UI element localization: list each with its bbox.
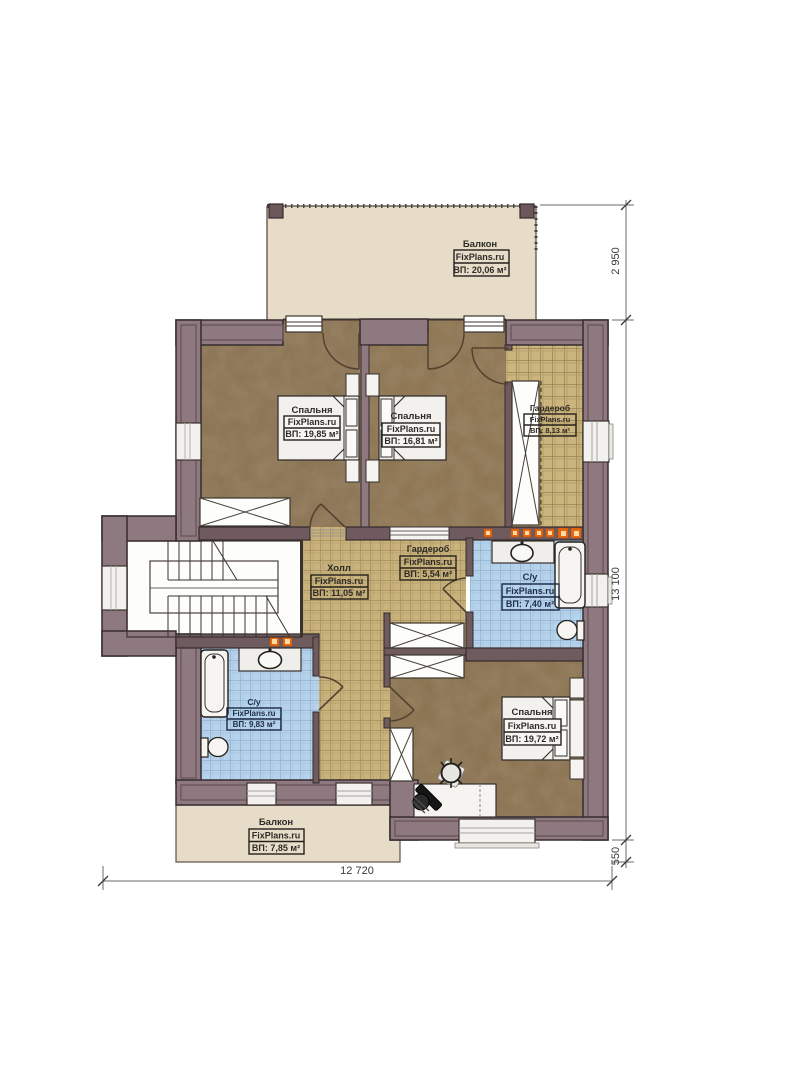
svg-text:С/у: С/у [523, 572, 539, 583]
svg-text:13 100: 13 100 [610, 567, 622, 601]
svg-text:Холл: Холл [327, 563, 351, 574]
svg-text:2 950: 2 950 [610, 247, 622, 275]
svg-text:ВП: 19,72 м²: ВП: 19,72 м² [505, 734, 558, 744]
svg-text:ВП: 16,81 м²: ВП: 16,81 м² [384, 436, 437, 446]
svg-text:С/у: С/у [247, 697, 261, 707]
svg-text:Балкон: Балкон [463, 239, 498, 250]
svg-text:ВП: 7,40 м²: ВП: 7,40 м² [506, 599, 554, 609]
svg-text:Спальня: Спальня [390, 411, 431, 422]
svg-text:Гардероб: Гардероб [407, 544, 450, 554]
svg-text:550: 550 [610, 847, 622, 865]
svg-text:ВП: 11,05 м²: ВП: 11,05 м² [313, 588, 366, 598]
svg-text:Балкон: Балкон [259, 817, 294, 828]
svg-text:ВП: 20,06 м²: ВП: 20,06 м² [453, 265, 506, 275]
svg-text:FixPlans.ru: FixPlans.ru [252, 831, 301, 841]
svg-text:FixPlans.ru: FixPlans.ru [508, 721, 557, 731]
svg-text:Спальня: Спальня [291, 405, 332, 416]
svg-text:FixPlans.ru: FixPlans.ru [404, 557, 453, 567]
svg-text:ВП: 5,54 м²: ВП: 5,54 м² [404, 569, 452, 579]
svg-text:ВП: 19,85 м²: ВП: 19,85 м² [285, 429, 338, 439]
svg-text:FixPlans.ru: FixPlans.ru [530, 415, 571, 424]
svg-text:FixPlans.ru: FixPlans.ru [506, 586, 555, 596]
svg-text:ВП: 8,13 м²: ВП: 8,13 м² [530, 426, 571, 435]
svg-text:12 720: 12 720 [340, 865, 374, 877]
svg-text:FixPlans.ru: FixPlans.ru [288, 417, 337, 427]
svg-text:ВП: 9,83 м²: ВП: 9,83 м² [233, 720, 276, 729]
svg-text:Спальня: Спальня [511, 707, 552, 718]
svg-text:ВП: 7,85 м²: ВП: 7,85 м² [252, 843, 300, 853]
svg-text:FixPlans.ru: FixPlans.ru [387, 424, 436, 434]
svg-text:FixPlans.ru: FixPlans.ru [232, 709, 275, 718]
svg-text:FixPlans.ru: FixPlans.ru [315, 576, 364, 586]
svg-text:FixPlans.ru: FixPlans.ru [456, 252, 505, 262]
svg-text:Гардероб: Гардероб [530, 403, 570, 413]
